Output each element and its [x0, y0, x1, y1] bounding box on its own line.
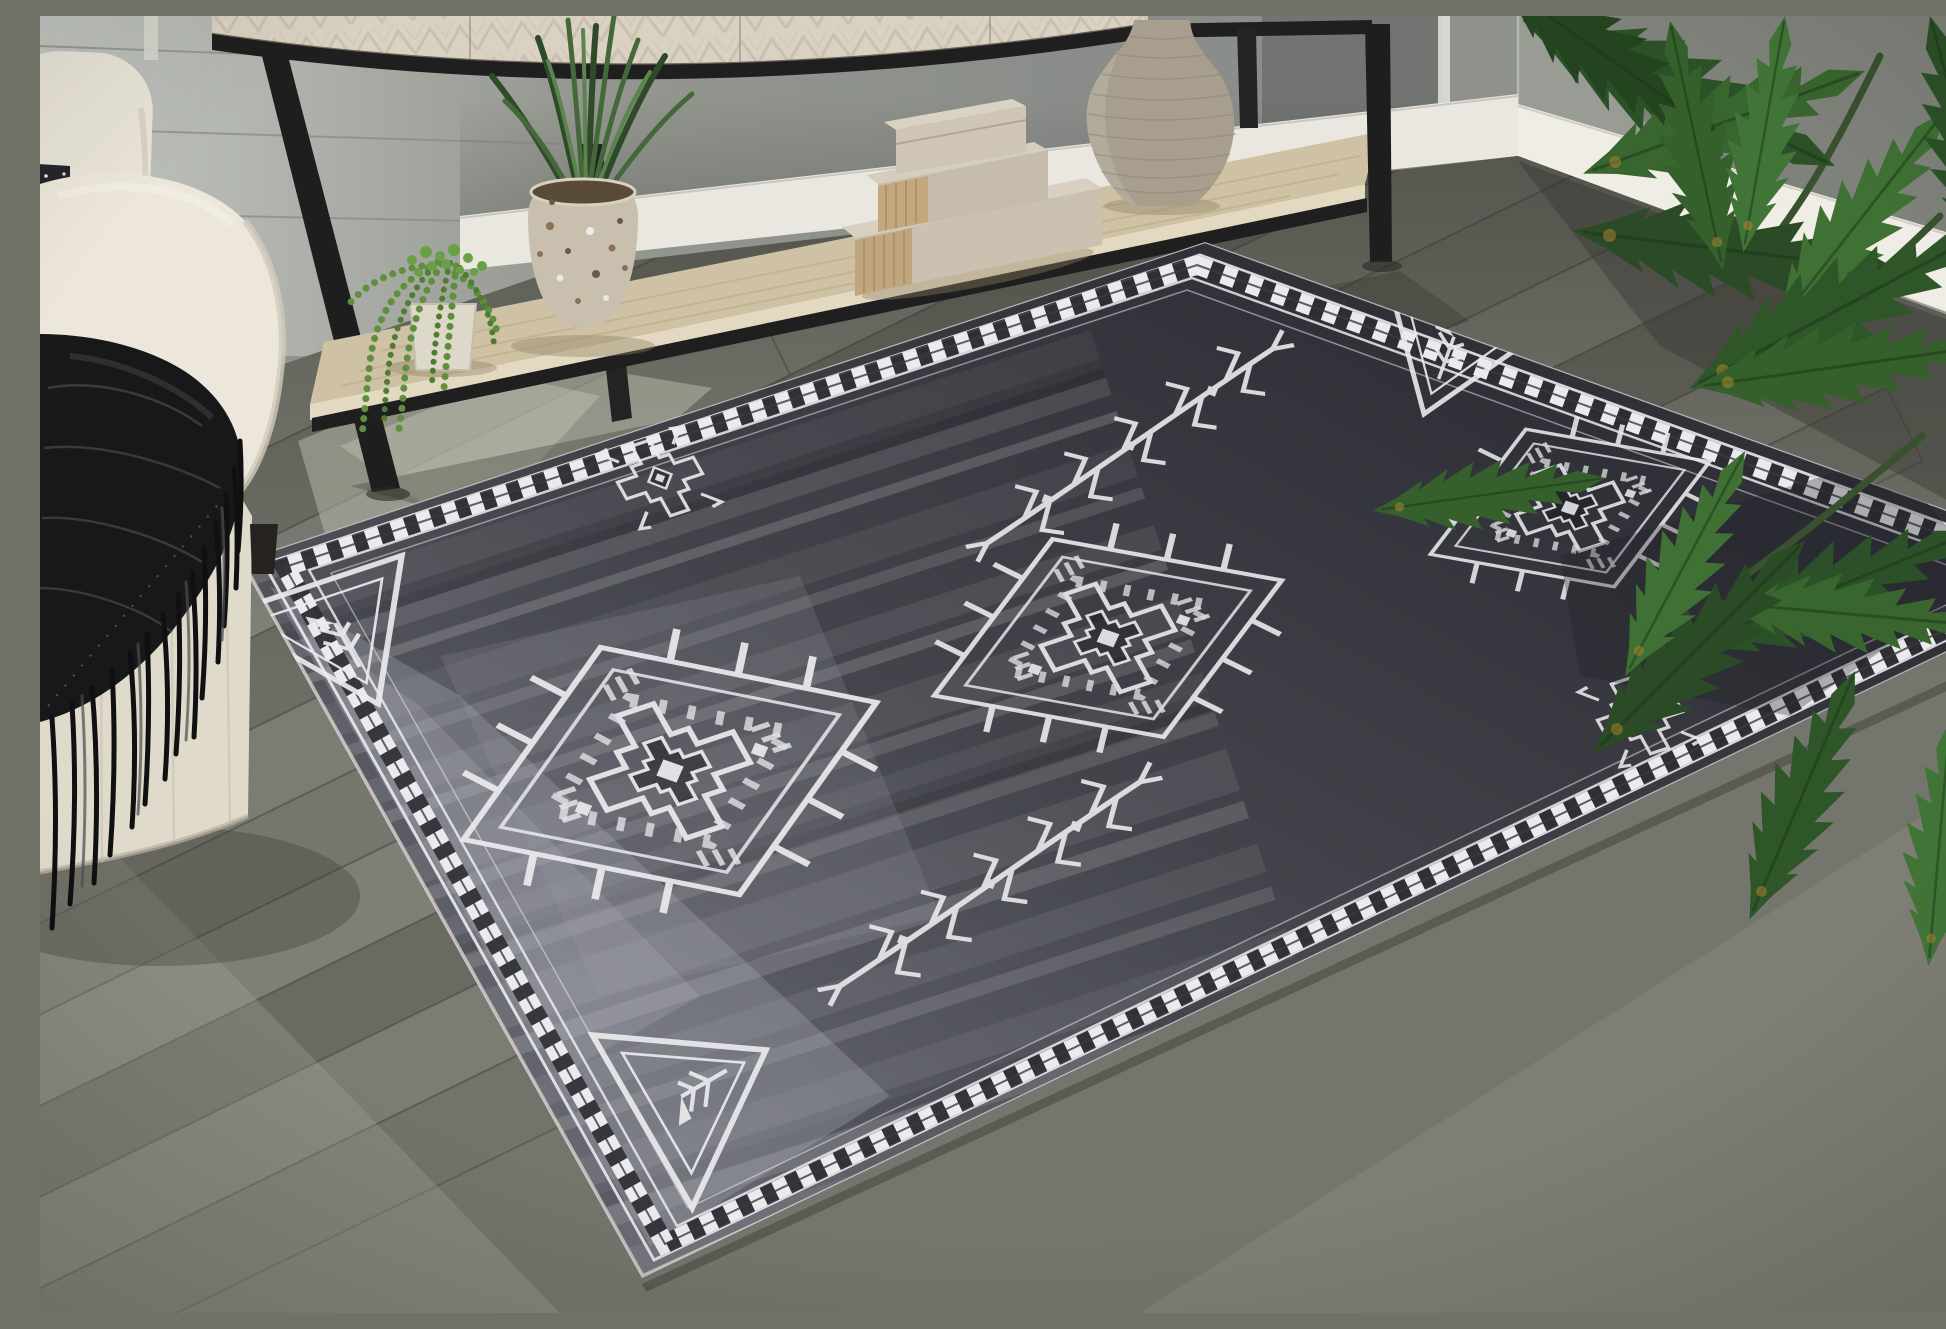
living-room-rug-photo: [40, 16, 1946, 1313]
vignette-overlay: [40, 16, 1946, 1313]
scene-canvas: [40, 16, 1946, 1313]
